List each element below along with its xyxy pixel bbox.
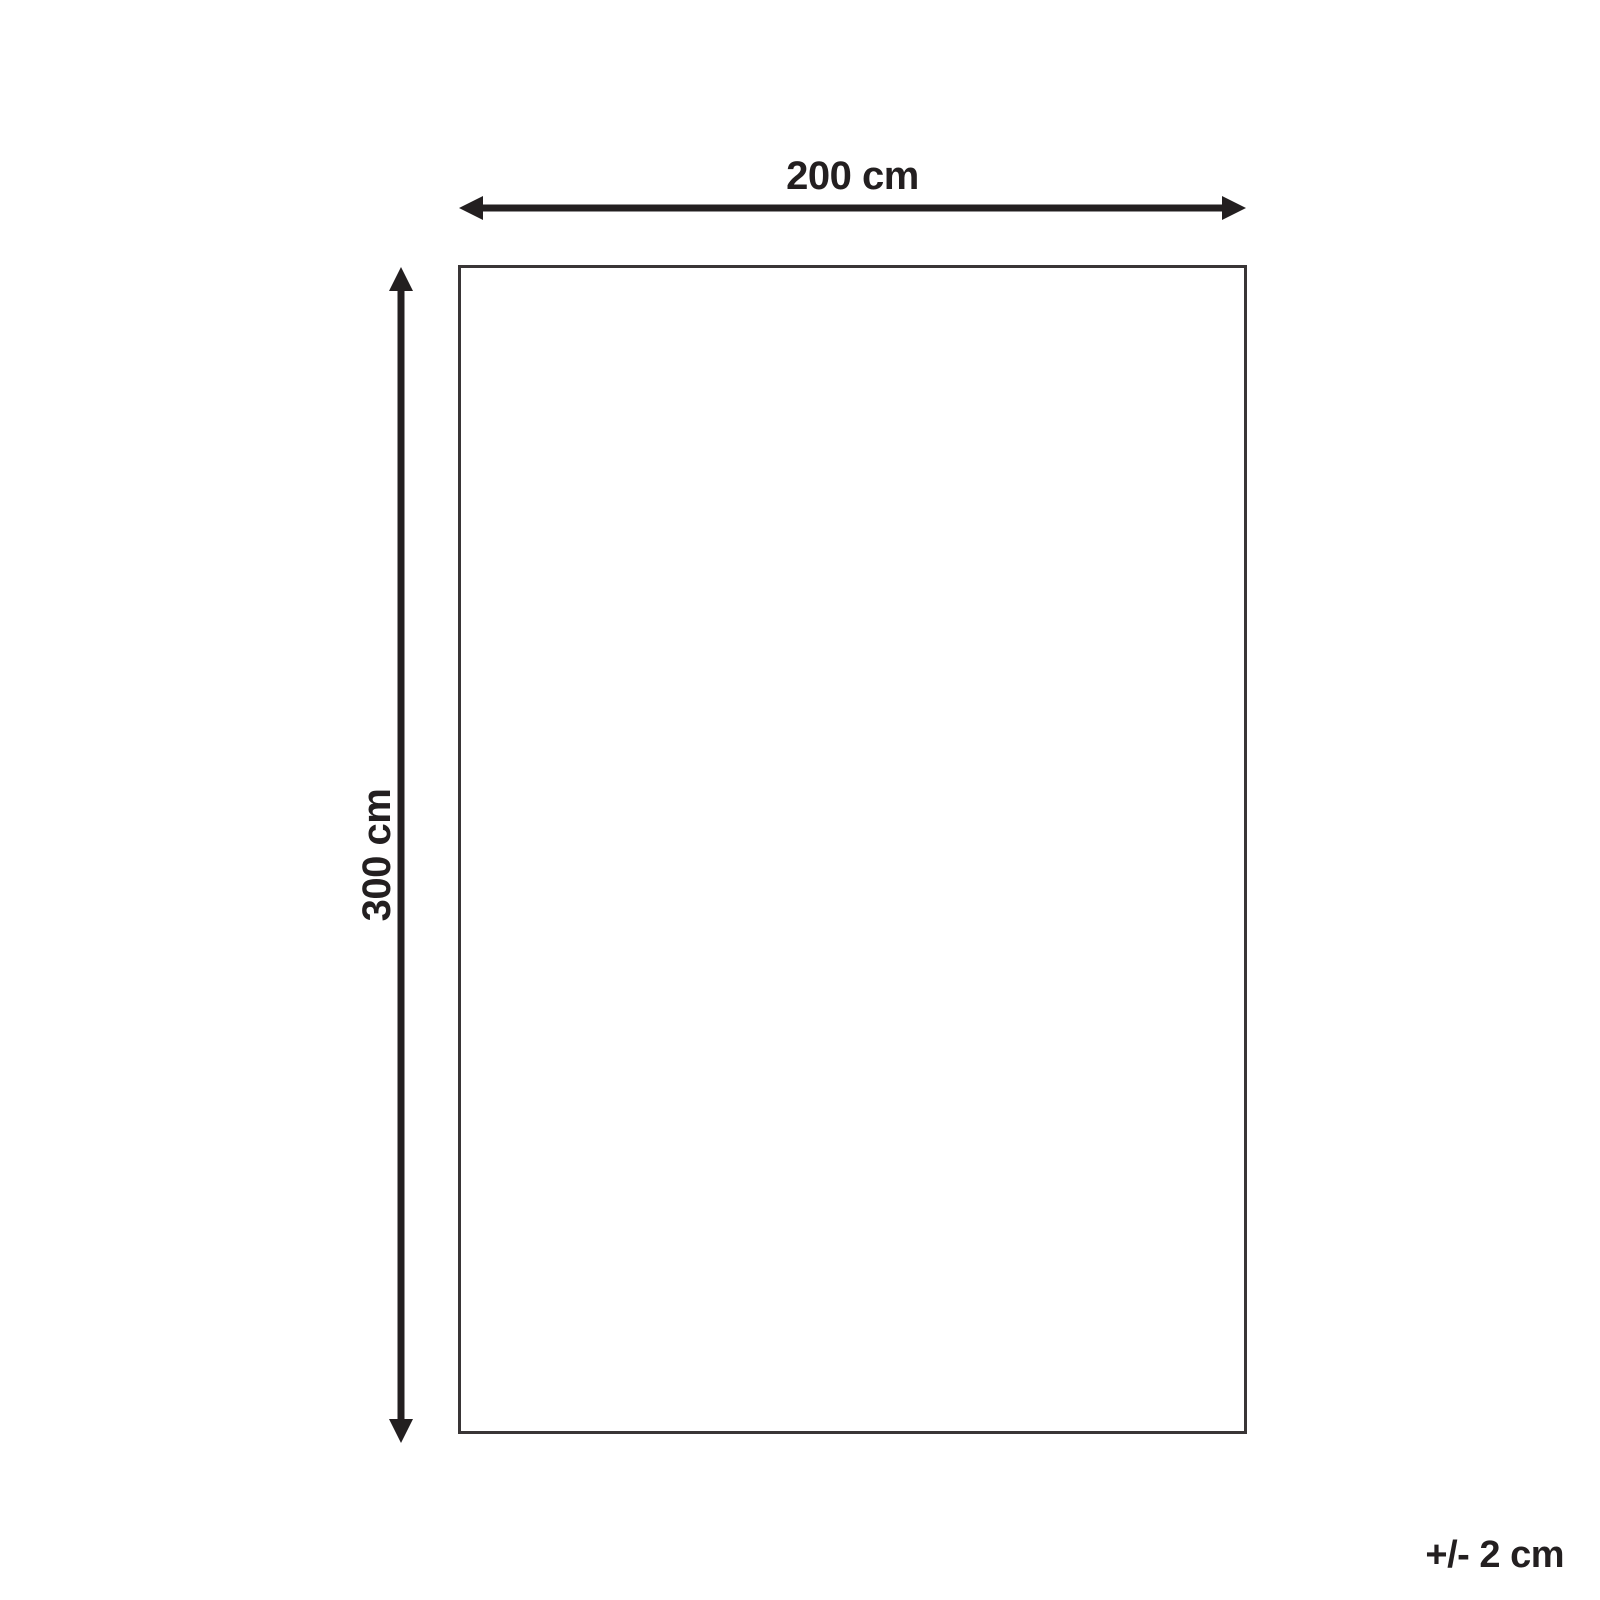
arrowhead-down-icon (389, 1419, 413, 1443)
arrowhead-up-icon (389, 267, 413, 291)
tolerance-label: +/- 2 cm (1425, 1536, 1564, 1574)
diagram-canvas: 200 cm 300 cm +/- 2 cm (0, 0, 1600, 1600)
height-dimension-label: 300 cm (357, 789, 397, 922)
arrowhead-right-icon (1222, 196, 1246, 220)
width-dimension-arrow (458, 194, 1247, 222)
arrowhead-left-icon (459, 196, 483, 220)
product-outline-rect (458, 265, 1247, 1434)
width-dimension-label: 200 cm (458, 156, 1247, 196)
